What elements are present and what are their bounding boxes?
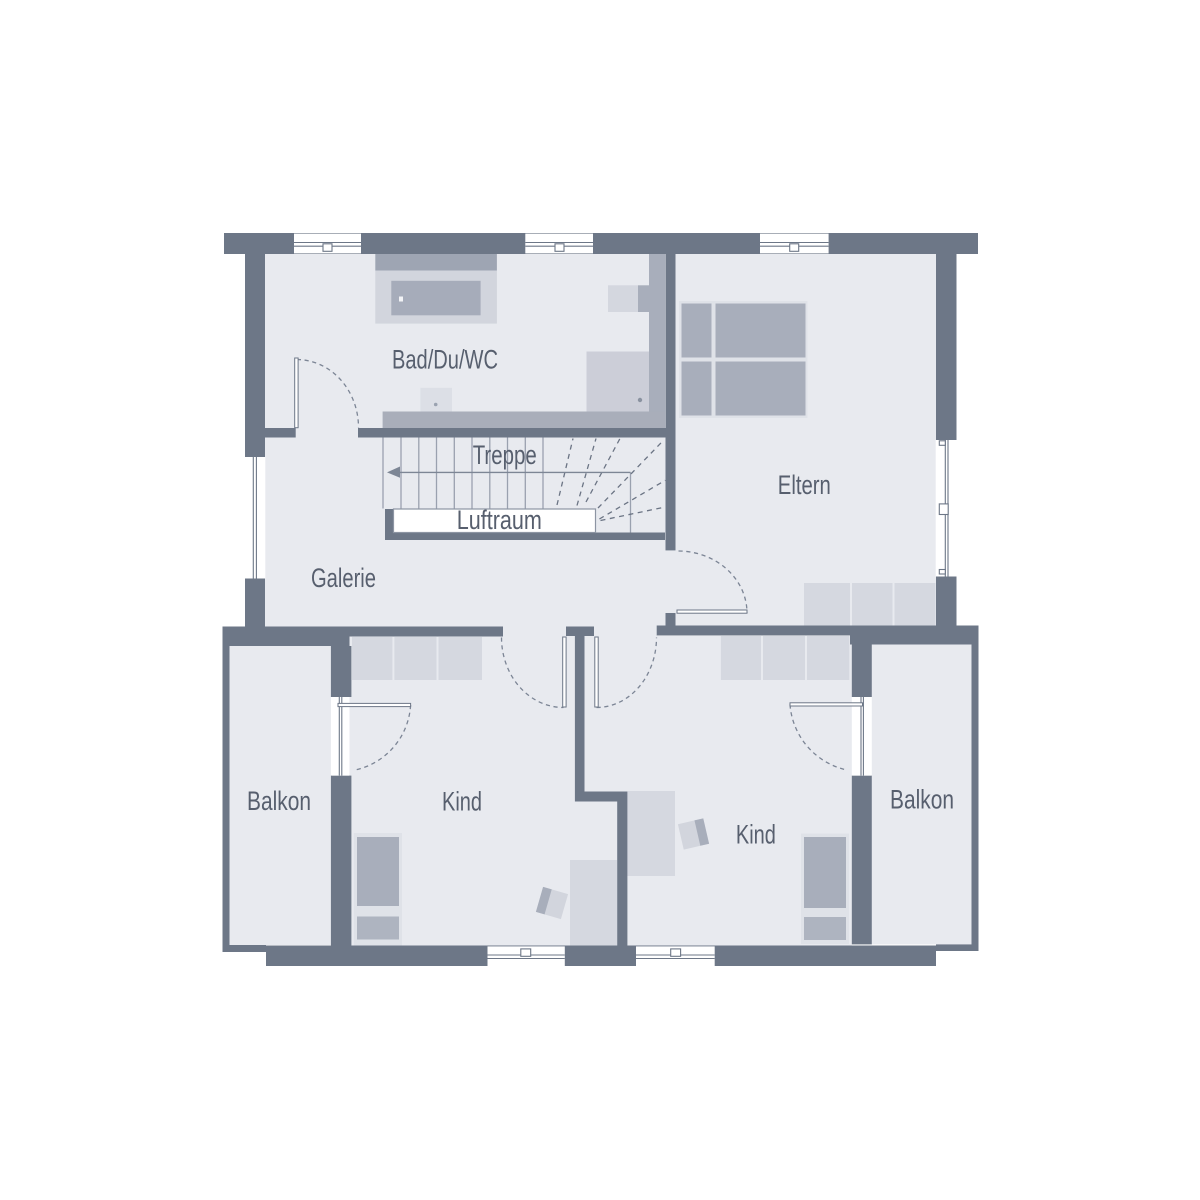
svg-text:Bad/Du/WC: Bad/Du/WC bbox=[392, 345, 498, 376]
svg-text:Balkon: Balkon bbox=[247, 787, 311, 817]
svg-text:Luftraum: Luftraum bbox=[457, 506, 542, 536]
svg-text:Galerie: Galerie bbox=[311, 563, 376, 594]
svg-text:Kind: Kind bbox=[442, 786, 482, 817]
svg-text:Eltern: Eltern bbox=[778, 470, 831, 501]
svg-text:Treppe: Treppe bbox=[473, 440, 537, 470]
svg-text:Balkon: Balkon bbox=[890, 785, 954, 815]
svg-text:Kind: Kind bbox=[736, 820, 776, 851]
